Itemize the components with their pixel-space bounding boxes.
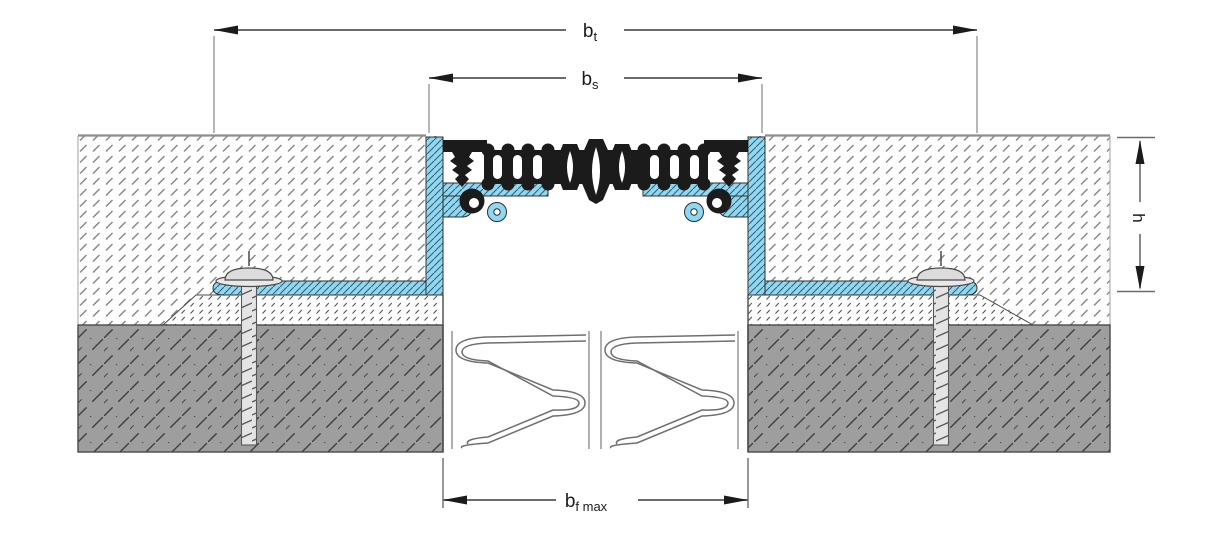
anchor-spike-left	[450, 152, 474, 187]
seal-curl-right	[707, 189, 732, 214]
dimension-bs: bs	[429, 69, 762, 133]
arrow-left	[429, 74, 453, 83]
arrow-left	[214, 26, 238, 35]
arrow-up	[1136, 140, 1145, 164]
profile-wall-right	[748, 137, 765, 295]
concrete-slab-right	[748, 325, 1110, 452]
arrow-right	[724, 496, 748, 505]
profile-wall-left	[426, 137, 443, 295]
arrow-down	[1136, 266, 1145, 290]
filler-ribbon-left	[456, 335, 586, 448]
dimension-bt-label: bt	[583, 21, 598, 44]
dimension-h-label: h	[1129, 213, 1148, 222]
anchor-spike-right	[717, 152, 741, 187]
expansion-joint-cross-section-diagram: bt bs h bf max	[0, 0, 1222, 538]
mortar-bed-left	[163, 295, 443, 325]
arrow-right	[953, 26, 977, 35]
screw-shank	[934, 283, 949, 445]
seal-curl-left	[460, 189, 485, 214]
dimension-bf-max: bf max	[443, 458, 748, 514]
joint-gap-filler	[443, 295, 748, 452]
arrow-right	[738, 74, 762, 83]
dimension-bs-label: bs	[581, 69, 599, 92]
arrow-left	[443, 496, 467, 505]
screw-shank	[242, 283, 257, 445]
filler-ribbon-right	[605, 335, 735, 448]
concrete-slab-left	[78, 325, 443, 452]
dimension-bf-max-label: bf max	[565, 491, 608, 514]
dimension-h: h	[1117, 138, 1155, 292]
